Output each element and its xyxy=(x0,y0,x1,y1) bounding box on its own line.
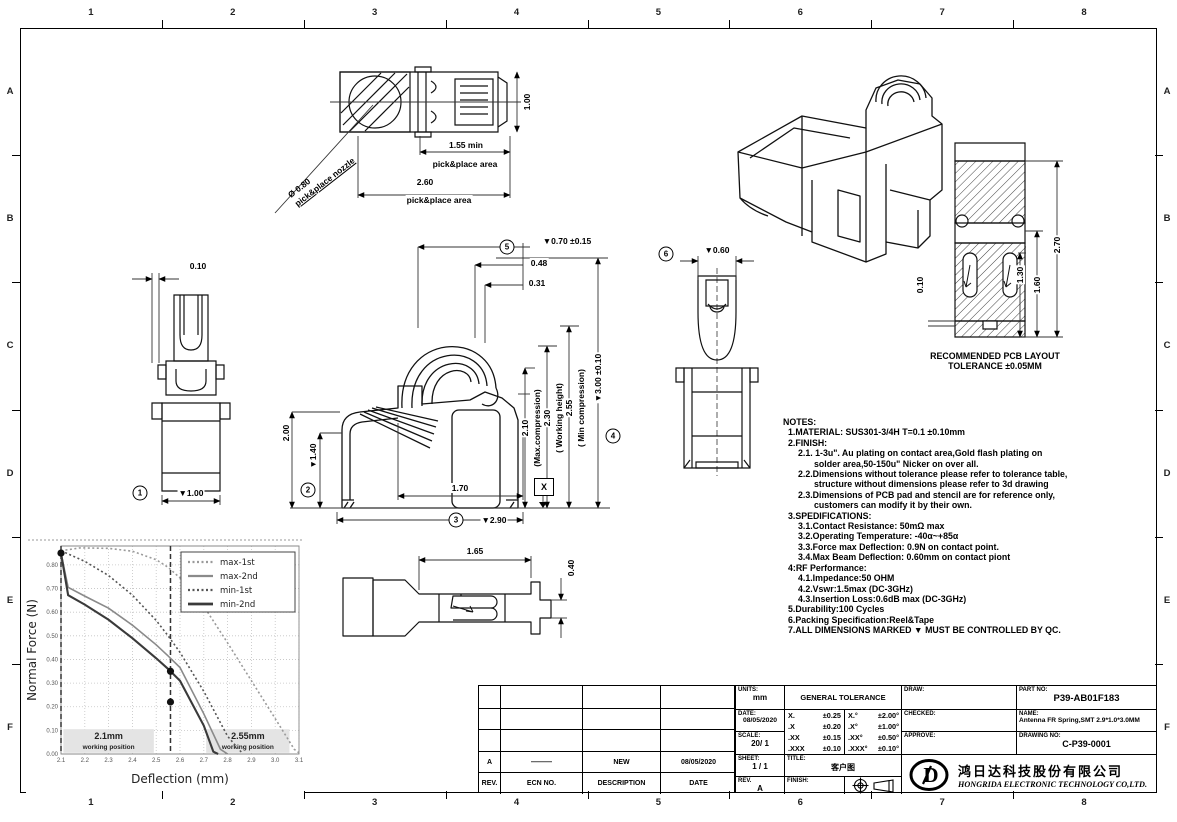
grid-column-label: 7 xyxy=(871,7,1013,23)
grid-tick xyxy=(1013,791,1014,799)
note-line: 3.3.Force max Deflection: 0.9N on contac… xyxy=(783,542,1161,552)
svg-text:2.3: 2.3 xyxy=(104,758,113,764)
dim-label: 2.70 xyxy=(1052,236,1062,255)
svg-text:working position: working position xyxy=(82,744,135,751)
note-line: 4:RF Performance: xyxy=(783,563,1161,573)
dim-label: 0.40 xyxy=(566,559,576,578)
grid-tick xyxy=(871,20,872,28)
note-line: 6.Packing Specification:Reel&Tape xyxy=(783,615,1161,625)
y-axis-label: Normal Force (N) xyxy=(26,599,39,701)
tolerance-symbol: X. xyxy=(788,711,795,720)
svg-text:0.50: 0.50 xyxy=(46,634,58,640)
dim-label: ▼1.40 xyxy=(308,443,318,470)
revision-cell xyxy=(501,729,583,751)
dim-label: pick&place area xyxy=(432,159,499,169)
balloon-marker-6: 6 xyxy=(659,247,674,262)
svg-text:2.9: 2.9 xyxy=(247,758,256,764)
grid-row-label: A xyxy=(1160,28,1174,155)
grid-tick xyxy=(1155,282,1163,283)
dim-label: (Max.compression) xyxy=(532,388,542,467)
svg-text:0.00: 0.00 xyxy=(46,752,58,758)
svg-text:3.1: 3.1 xyxy=(295,758,304,764)
grid-row-label: C xyxy=(3,282,17,409)
grid-tick xyxy=(12,282,20,283)
tolerance-angular: X.°±2.00°.X°±1.00°.XX°±0.50°.XXX°±0.10° xyxy=(845,710,901,754)
tolerance-row: X.°±2.00° xyxy=(845,711,901,720)
tolerance-row: .X±0.20 xyxy=(785,722,844,731)
legend-label: min-1st xyxy=(220,586,253,596)
note-line: 5.Durability:100 Cycles xyxy=(783,604,1161,614)
note-line: 4.2.Vswr:1.5max (DC-3GHz) xyxy=(783,584,1161,594)
grid-column-label: 1 xyxy=(20,797,162,813)
tolerance-row: .XX°±0.50° xyxy=(845,733,901,742)
units-value: mm xyxy=(736,693,784,702)
tolerance-symbol: .XXX xyxy=(788,744,805,753)
tolerance-value: ±0.15 xyxy=(823,733,841,742)
pcb-layout-view: 0.10 1.30 1.60 2.70 RECOMMENDED PCB LAYO… xyxy=(900,135,1160,383)
grid-tick xyxy=(162,20,163,28)
scale-label: SCALE: xyxy=(736,732,784,739)
tolerance-value: ±0.25 xyxy=(823,711,841,720)
part-no-value: P39-AB01F183 xyxy=(1017,693,1156,704)
revision-cell: ECN NO. xyxy=(501,772,583,794)
dim-label: 0.10 xyxy=(915,276,925,295)
dim-label: 2.60 xyxy=(416,177,435,187)
name-cell: NAME: Antenna FR Spring,SMT 2.9*1.0*3.0M… xyxy=(1016,709,1156,731)
top-view: 1.00 1.55 min pick&place area 2.60 pick&… xyxy=(255,55,545,227)
company-name-cn: 鸿日达科技股份有限公司 xyxy=(958,761,1147,780)
finish-cell: FINISH: xyxy=(784,776,844,794)
svg-text:2.6: 2.6 xyxy=(176,758,185,764)
drawing-no-value: C-P39-0001 xyxy=(1017,739,1156,749)
note-line: NOTES: xyxy=(783,417,1161,427)
dim-label: 1.30 xyxy=(1015,266,1025,285)
grid-row-label: A xyxy=(3,28,17,155)
pcb-caption-line2: TOLERANCE ±0.05MM xyxy=(885,361,1105,371)
draw-cell: DRAW: xyxy=(901,686,1016,709)
grid-column-label: 2 xyxy=(162,797,304,813)
grid-row-label: B xyxy=(1160,155,1174,282)
engineering-drawing-page: 12345678 12345678 ABCDEF ABCDEF xyxy=(0,0,1177,822)
balloon-marker-5: 5 xyxy=(500,240,515,255)
checked-cell: CHECKED: xyxy=(901,709,1016,731)
tolerance-symbol: .XX° xyxy=(848,733,863,742)
title-cell: TITLE: 客户图 xyxy=(784,754,901,776)
grid-tick xyxy=(729,791,730,799)
svg-text:0.40: 0.40 xyxy=(46,657,58,663)
dim-label: 1.00 xyxy=(522,93,532,112)
name-value: Antenna FR Spring,SMT 2.9*1.0*3.0MM xyxy=(1017,717,1156,724)
title-label: TITLE: xyxy=(785,755,901,762)
dim-label: 1.70 xyxy=(451,483,470,493)
revision-cell xyxy=(501,708,583,730)
grid-tick xyxy=(1155,537,1163,538)
grid-tick xyxy=(162,791,163,799)
drawing-no-cell: DRAWING NO: C-P39-0001 xyxy=(1016,731,1156,754)
svg-text:2.1mm: 2.1mm xyxy=(94,731,123,741)
pcb-caption-line1: RECOMMENDED PCB LAYOUT xyxy=(885,351,1105,361)
svg-text:2.55mm: 2.55mm xyxy=(231,731,265,741)
side-view-right: 6 ▼0.60 xyxy=(652,240,782,478)
dim-label: 0.10 xyxy=(189,261,208,271)
pcb-caption: RECOMMENDED PCB LAYOUT TOLERANCE ±0.05MM xyxy=(885,351,1105,371)
grid-tick xyxy=(588,791,589,799)
tolerance-symbol: .X° xyxy=(848,722,858,731)
dim-label: 2.30 xyxy=(542,409,552,428)
grid-column-label: 8 xyxy=(1013,7,1155,23)
balloon-marker-1: 1 xyxy=(133,486,148,501)
date-value: 08/05/2020 xyxy=(736,717,784,724)
note-line: 3.SPEDIFICATIONS: xyxy=(783,511,1161,521)
part-no-label: PART NO: xyxy=(1017,686,1156,693)
tolerance-symbol: .X xyxy=(788,722,795,731)
revision-cell xyxy=(479,686,501,708)
rev-cell: REV. A xyxy=(736,776,784,794)
grid-tick xyxy=(1155,410,1163,411)
revision-cell xyxy=(661,729,736,751)
force-deflection-chart: 2.1mmworking position2.55mmworking posit… xyxy=(26,539,305,793)
front-view: 2.00 ▼1.40 2 5 ▼0.70 ±0.15 0.48 0.31 2.1… xyxy=(280,228,640,528)
svg-text:2.2: 2.2 xyxy=(81,758,90,764)
scale-value: 20/ 1 xyxy=(736,739,784,748)
drawing-no-label: DRAWING NO: xyxy=(1017,732,1156,739)
grid-column-label: 2 xyxy=(162,7,304,23)
dim-label: 2.00 xyxy=(281,424,291,443)
pcb-layout-drawing xyxy=(900,135,1160,383)
balloon-marker-3: 3 xyxy=(449,513,464,528)
data-point-marker xyxy=(57,549,64,556)
svg-text:2.5: 2.5 xyxy=(152,758,161,764)
chart-canvas: 2.1mmworking position2.55mmworking posit… xyxy=(26,539,305,793)
revision-cell xyxy=(583,729,661,751)
grid-tick xyxy=(304,791,305,799)
rev-label: REV. xyxy=(736,777,784,784)
svg-text:2.7: 2.7 xyxy=(200,758,209,764)
svg-text:working position: working position xyxy=(221,744,274,751)
note-line: 2.2.Dimensions without tolerance please … xyxy=(783,469,1161,479)
grid-column-label: 6 xyxy=(729,797,871,813)
grid-column-label: 4 xyxy=(446,797,588,813)
draw-label: DRAW: xyxy=(902,686,1016,693)
third-angle-projection-target-icon xyxy=(852,777,869,794)
tolerance-header: GENERAL TOLERANCE xyxy=(800,693,885,702)
dim-label: 2.55 xyxy=(564,399,574,418)
grid-tick xyxy=(1155,664,1163,665)
grid-column-label: 6 xyxy=(729,7,871,23)
revision-table: A———NEW08/05/2020REV.ECN NO.DESCRIPTIOND… xyxy=(478,685,735,793)
bottom-view: 1.65 0.40 xyxy=(335,540,585,658)
approve-label: APPROVE: xyxy=(902,732,1016,739)
sheet-cell: SHEET: 1 / 1 xyxy=(736,754,784,776)
grid-row-label: C xyxy=(1160,282,1174,409)
note-line: 7.ALL DIMENSIONS MARKED ▼ MUST BE CONTRO… xyxy=(783,625,1161,635)
date-cell: DATE: 08/05/2020 xyxy=(736,709,784,731)
checked-label: CHECKED: xyxy=(902,710,1016,717)
note-line: customers can modify it by their own. xyxy=(783,500,1161,510)
tolerance-value: ±0.10 xyxy=(823,744,841,753)
tolerance-row: X.±0.25 xyxy=(785,711,844,720)
svg-text:2.4: 2.4 xyxy=(128,758,137,764)
tolerance-symbol: .XX xyxy=(788,733,800,742)
revision-cell xyxy=(583,686,661,708)
svg-text:2.1: 2.1 xyxy=(57,758,66,764)
grid-tick xyxy=(12,410,20,411)
grid-column-label: 5 xyxy=(588,7,730,23)
svg-text:0.30: 0.30 xyxy=(46,681,58,687)
note-line: structure without dimensions please refe… xyxy=(783,479,1161,489)
note-line: solder area,50-150u" Nicker on over all. xyxy=(783,459,1161,469)
data-point-marker xyxy=(167,698,174,705)
tolerance-value: ±0.10° xyxy=(878,744,899,753)
grid-row-label: E xyxy=(1160,537,1174,664)
svg-text:0.60: 0.60 xyxy=(46,610,58,616)
note-line: 2.3.Dimensions of PCB pad and stencil ar… xyxy=(783,490,1161,500)
grid-tick xyxy=(446,791,447,799)
dim-label: pick&place area xyxy=(406,195,473,205)
note-line: 4.1.Impedance:50 OHM xyxy=(783,573,1161,583)
grid-columns-bottom: 12345678 xyxy=(20,797,1155,813)
revision-cell xyxy=(583,708,661,730)
grid-column-label: 1 xyxy=(20,7,162,23)
grid-row-label: D xyxy=(3,410,17,537)
legend-label: min-2nd xyxy=(220,600,255,610)
tolerance-grid: X.±0.25.X±0.20.XX±0.15.XXX±0.10 X.°±2.00… xyxy=(784,709,901,754)
revision-cell: REV. xyxy=(479,772,501,794)
revision-cell: DESCRIPTION xyxy=(583,772,661,794)
grid-tick xyxy=(12,155,20,156)
svg-text:0.80: 0.80 xyxy=(46,563,58,569)
scale-cell: SCALE: 20/ 1 xyxy=(736,731,784,754)
grid-row-label: E xyxy=(3,537,17,664)
projection-cell xyxy=(844,776,901,794)
grid-row-label: F xyxy=(1160,664,1174,791)
grid-column-label: 3 xyxy=(304,7,446,23)
dim-label: ▼0.70 ±0.15 xyxy=(542,236,593,246)
datum-x-box: X xyxy=(534,478,554,496)
note-line: 2.FINISH: xyxy=(783,438,1161,448)
revision-cell xyxy=(501,686,583,708)
tolerance-linear: X.±0.25.X±0.20.XX±0.15.XXX±0.10 xyxy=(785,710,845,754)
units-cell: UNITS: mm xyxy=(736,686,784,709)
dim-label: ( Min compression) xyxy=(576,368,586,448)
note-line: 3.2.Operating Temperature: -40α~+85α xyxy=(783,531,1161,541)
grid-tick xyxy=(304,20,305,28)
approve-cell: APPROVE: xyxy=(901,731,1016,754)
notes-block: NOTES:1.MATERIAL: SUS301-3/4H T=0.1 ±0.1… xyxy=(783,417,1161,636)
dim-label: 0.31 xyxy=(528,278,547,288)
dim-label: 1.65 xyxy=(466,546,485,556)
note-line: 2.1. 1-3u". Au plating on contact area,G… xyxy=(783,448,1161,458)
side-view-right-drawing xyxy=(652,240,782,478)
note-line: 1.MATERIAL: SUS301-3/4H T=0.1 ±0.10mm xyxy=(783,427,1161,437)
dim-label: ▼1.00 xyxy=(178,488,205,498)
tolerance-row: .X°±1.00° xyxy=(845,722,901,731)
tolerance-value: ±2.00° xyxy=(878,711,899,720)
data-point-marker xyxy=(167,668,174,675)
svg-text:2.8: 2.8 xyxy=(223,758,232,764)
svg-text:0.10: 0.10 xyxy=(46,728,58,734)
dim-label: 0.48 xyxy=(530,258,549,268)
grid-tick xyxy=(729,20,730,28)
dim-label: 1.55 min xyxy=(448,140,484,150)
dim-label: ▼0.60 xyxy=(704,245,731,255)
side-view-left-drawing xyxy=(122,253,272,503)
grid-row-label: F xyxy=(3,664,17,791)
revision-cell: DATE xyxy=(661,772,736,794)
grid-tick xyxy=(871,791,872,799)
tolerance-value: ±0.50° xyxy=(878,733,899,742)
dim-label: ▼3.00 ±0.10 xyxy=(593,353,603,404)
x-axis-label: Deflection (mm) xyxy=(131,772,229,786)
title-value: 客户图 xyxy=(785,762,901,773)
balloon-marker-4: 4 xyxy=(606,429,621,444)
revision-cell: ——— xyxy=(501,751,583,773)
note-line: 3.4.Max Beam Deflection: 0.60mm on conta… xyxy=(783,552,1161,562)
revision-cell xyxy=(661,686,736,708)
svg-text:0.20: 0.20 xyxy=(46,705,58,711)
part-no-cell: PART NO: P39-AB01F183 xyxy=(1016,686,1156,709)
grid-column-label: 4 xyxy=(446,7,588,23)
grid-column-label: 7 xyxy=(871,797,1013,813)
dim-label: ( Working height) xyxy=(554,382,564,454)
grid-tick xyxy=(1155,155,1163,156)
tolerance-value: ±0.20 xyxy=(823,722,841,731)
units-label: UNITS: xyxy=(736,686,784,693)
grid-column-label: 8 xyxy=(1013,797,1155,813)
grid-row-label: B xyxy=(3,155,17,282)
title-block: UNITS: mm DATE: 08/05/2020 SCALE: 20/ 1 … xyxy=(735,685,1157,793)
revision-cell: NEW xyxy=(583,751,661,773)
company-logo: D xyxy=(908,758,950,792)
rev-value: A xyxy=(736,784,784,793)
tolerance-row: .XX±0.15 xyxy=(785,733,844,742)
side-view-left: 0.10 1 ▼1.00 xyxy=(122,253,272,503)
note-line: 4.3.Insertion Loss:0.6dB max (DC-3GHz) xyxy=(783,594,1161,604)
legend-label: max-1st xyxy=(220,558,255,568)
dim-label: 1.60 xyxy=(1032,276,1042,295)
finish-label: FINISH: xyxy=(785,777,844,784)
grid-row-label: D xyxy=(1160,410,1174,537)
company-name-en: HONGRIDA ELECTRONIC TECHNOLOGY CO,LTD. xyxy=(958,780,1147,789)
svg-text:3.0: 3.0 xyxy=(271,758,280,764)
grid-column-label: 3 xyxy=(304,797,446,813)
revision-cell xyxy=(479,729,501,751)
svg-text:0.70: 0.70 xyxy=(46,587,58,593)
revision-cell xyxy=(661,708,736,730)
grid-tick xyxy=(446,20,447,28)
grid-tick xyxy=(588,20,589,28)
sheet-value: 1 / 1 xyxy=(736,762,784,771)
revision-cell: 08/05/2020 xyxy=(661,751,736,773)
tolerance-symbol: X.° xyxy=(848,711,858,720)
grid-column-label: 5 xyxy=(588,797,730,813)
dim-label: 2.10 xyxy=(520,419,530,438)
sheet-label: SHEET: xyxy=(736,755,784,762)
company-cell: D 鸿日达科技股份有限公司 HONGRIDA ELECTRONIC TECHNO… xyxy=(901,754,1156,794)
balloon-marker-2: 2 xyxy=(301,483,316,498)
grid-tick xyxy=(12,664,20,665)
tolerance-symbol: .XXX° xyxy=(848,744,868,753)
grid-tick xyxy=(1013,20,1014,28)
projection-cone-icon xyxy=(873,779,895,793)
tolerance-row: .XXX±0.10 xyxy=(785,744,844,753)
dim-label: ▼2.90 xyxy=(481,515,508,525)
revision-cell: A xyxy=(479,751,501,773)
revision-cell xyxy=(479,708,501,730)
tolerance-value: ±1.00° xyxy=(878,722,899,731)
grid-tick xyxy=(12,537,20,538)
tolerance-row: .XXX°±0.10° xyxy=(845,744,901,753)
date-label: DATE: xyxy=(736,710,784,717)
name-label: NAME: xyxy=(1017,710,1156,717)
note-line: 3.1.Contact Resistance: 50mΩ max xyxy=(783,521,1161,531)
bottom-view-drawing xyxy=(335,540,585,658)
legend-label: max-2nd xyxy=(220,572,258,582)
tolerance-header-cell: GENERAL TOLERANCE xyxy=(784,686,901,709)
